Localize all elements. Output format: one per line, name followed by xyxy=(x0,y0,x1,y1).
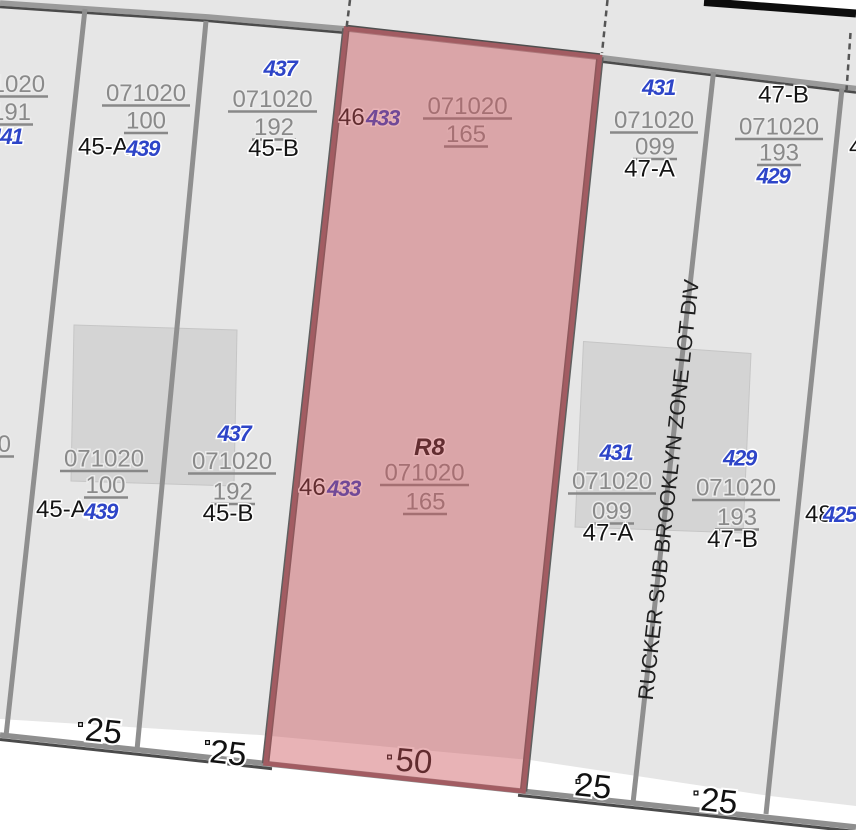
svg-text:100: 100 xyxy=(126,108,166,135)
svg-text:441: 441 xyxy=(0,124,24,149)
svg-text:071020: 071020 xyxy=(572,468,652,495)
svg-text:47-B: 47-B xyxy=(758,82,809,109)
svg-text:071020: 071020 xyxy=(232,86,312,113)
svg-text:100: 100 xyxy=(85,472,125,499)
svg-text:071020: 071020 xyxy=(614,107,694,134)
svg-text:071020: 071020 xyxy=(106,80,186,107)
svg-text:45-A: 45-A xyxy=(78,134,129,161)
svg-text:47-A: 47-A xyxy=(624,156,675,183)
svg-text:425: 425 xyxy=(822,502,856,527)
svg-text:25: 25 xyxy=(699,780,739,821)
svg-text:071020: 071020 xyxy=(0,71,45,98)
svg-text:193: 193 xyxy=(759,140,799,167)
svg-text:071020: 071020 xyxy=(0,431,11,458)
svg-text:45-B: 45-B xyxy=(248,135,299,162)
svg-text:431: 431 xyxy=(641,75,676,100)
svg-text:071020: 071020 xyxy=(192,448,272,475)
svg-text:25: 25 xyxy=(208,732,248,773)
svg-text:429: 429 xyxy=(755,164,791,189)
svg-text:437: 437 xyxy=(216,421,253,446)
svg-text:439: 439 xyxy=(83,499,119,524)
svg-text:191: 191 xyxy=(0,99,31,126)
svg-text:429: 429 xyxy=(722,446,758,471)
svg-text:47-B: 47-B xyxy=(707,526,758,553)
svg-text:47-A: 47-A xyxy=(583,520,634,547)
svg-text:071020: 071020 xyxy=(64,446,144,473)
svg-text:45-B: 45-B xyxy=(203,500,254,527)
svg-text:439: 439 xyxy=(125,136,161,161)
svg-text:25: 25 xyxy=(84,710,124,751)
svg-text:48: 48 xyxy=(849,134,856,161)
svg-text:071020: 071020 xyxy=(696,475,776,502)
svg-text:431: 431 xyxy=(598,440,633,465)
svg-text:25: 25 xyxy=(573,765,613,806)
svg-text:071020: 071020 xyxy=(739,114,819,141)
svg-text:437: 437 xyxy=(262,56,299,81)
svg-text:45-A: 45-A xyxy=(36,496,87,523)
